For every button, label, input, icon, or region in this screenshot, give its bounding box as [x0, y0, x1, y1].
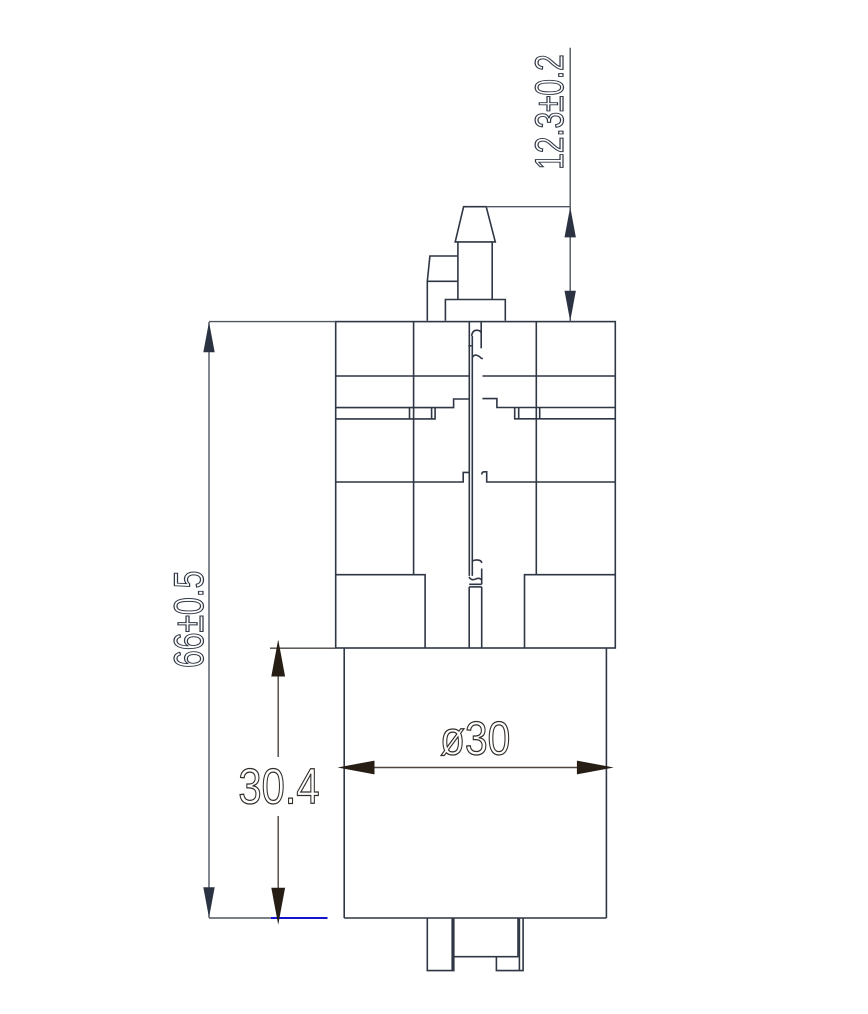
svg-text:30.4: 30.4	[238, 759, 319, 815]
svg-text:12.3±0.2: 12.3±0.2	[528, 54, 572, 169]
svg-text:ø30: ø30	[440, 711, 510, 764]
svg-text:66±0.5: 66±0.5	[165, 571, 212, 668]
